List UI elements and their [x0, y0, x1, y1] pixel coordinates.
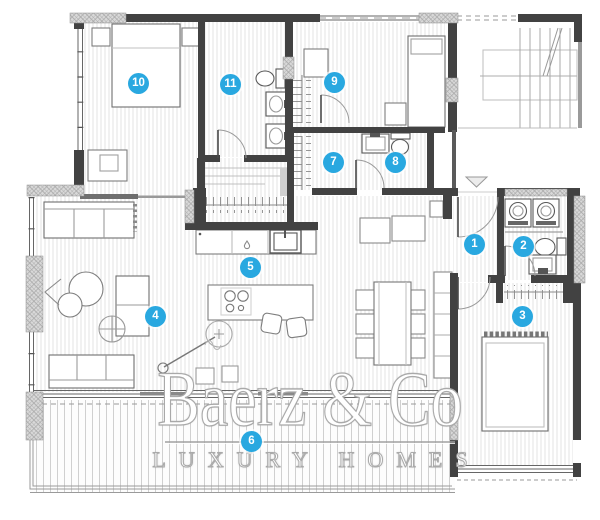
sofa-icon — [49, 355, 134, 388]
kitchen-counter-icon — [196, 230, 316, 254]
room-badge-10: 10 — [128, 73, 149, 94]
room-badge-3: 3 — [512, 306, 533, 327]
washer-icon — [505, 199, 531, 227]
bed-icon-3 — [482, 334, 548, 431]
cabinet-icon — [434, 272, 452, 378]
coffee-table-icon — [58, 293, 82, 317]
room-badge-6: 6 — [241, 431, 262, 452]
planter-icon — [222, 366, 238, 382]
room-badge-9: 9 — [324, 72, 345, 93]
room-badge-4: 4 — [145, 306, 166, 327]
room-badge-11: 11 — [220, 74, 241, 95]
desk-icon — [88, 150, 127, 181]
desk-icon — [304, 49, 328, 77]
room-badge-1: 1 — [464, 234, 485, 255]
stairs-icon — [458, 22, 582, 128]
sink-icon — [362, 133, 389, 153]
entrance-arrow-icon — [466, 177, 487, 187]
floor-plan: Baerz & Co LUXURY HOMES 1 2 3 4 5 6 7 8 … — [0, 0, 600, 520]
closet-column — [280, 168, 288, 196]
stool-icon — [260, 313, 282, 335]
planter-icon — [196, 368, 214, 384]
nightstand-icon — [385, 103, 406, 125]
floor-plan-drawing — [0, 0, 600, 520]
sliding-door — [138, 196, 188, 199]
partition-wall — [80, 194, 138, 199]
room-badge-8: 8 — [385, 152, 406, 173]
toilet-icon — [535, 238, 566, 256]
dryer-icon — [533, 199, 559, 227]
nightstand-icon — [92, 28, 110, 46]
stool-icon — [286, 317, 307, 338]
room-badge-2: 2 — [513, 236, 534, 257]
side-table-icon — [99, 316, 125, 342]
lounge-chair-icon — [116, 276, 149, 336]
sofa-icon — [44, 202, 134, 238]
nightstand-icon — [182, 28, 200, 46]
room-badge-7: 7 — [323, 152, 344, 173]
kitchen-island-icon — [208, 285, 313, 320]
dining-set-icon — [356, 282, 425, 365]
room-badge-5: 5 — [240, 257, 261, 278]
